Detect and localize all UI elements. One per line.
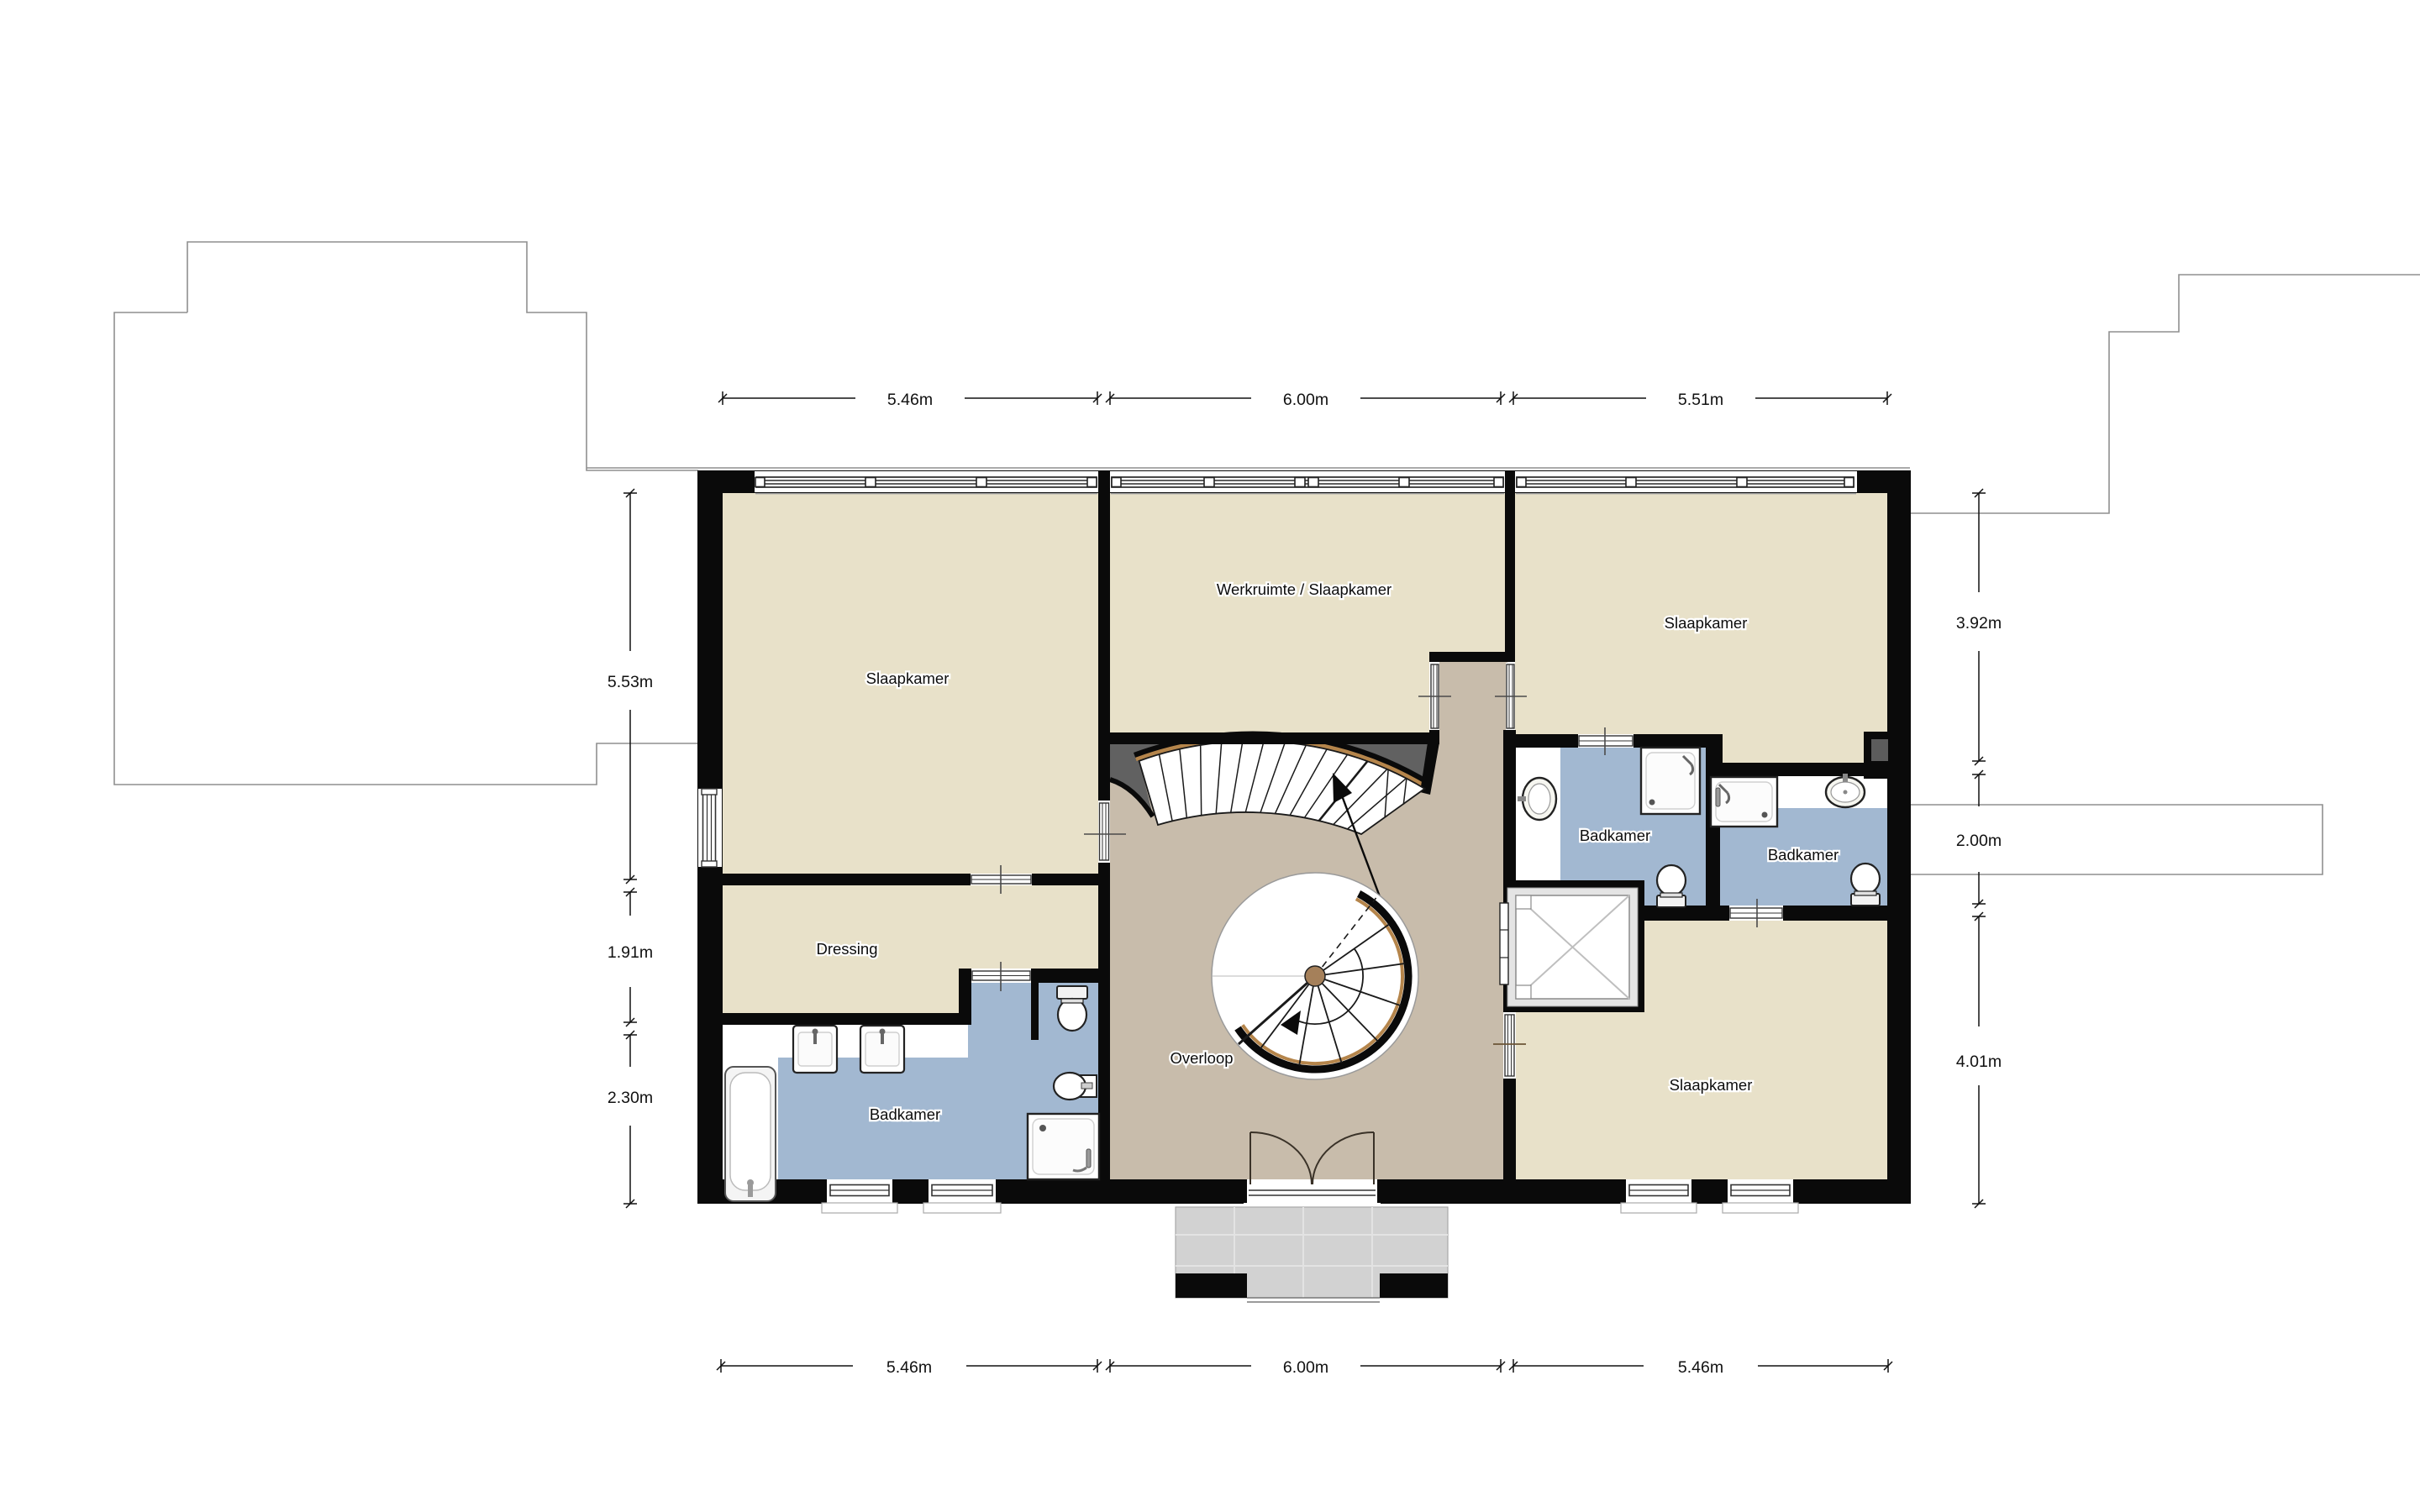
svg-text:Badkamer: Badkamer [870,1105,940,1123]
svg-text:2.30m: 2.30m [608,1089,653,1107]
svg-text:Werkruimte / Slaapkamer: Werkruimte / Slaapkamer [1217,580,1391,598]
svg-text:5.46m: 5.46m [887,391,933,409]
svg-text:Badkamer: Badkamer [1580,827,1650,844]
svg-text:Badkamer: Badkamer [1768,846,1839,864]
svg-text:3.92m: 3.92m [1956,614,2002,633]
svg-text:5.53m: 5.53m [608,673,653,691]
svg-text:4.01m: 4.01m [1956,1053,2002,1071]
svg-text:5.46m: 5.46m [1678,1358,1723,1377]
svg-text:Dressing: Dressing [817,940,878,958]
svg-text:Slaapkamer: Slaapkamer [1665,614,1748,632]
svg-text:6.00m: 6.00m [1283,391,1328,409]
svg-text:Overloop: Overloop [1170,1049,1233,1067]
svg-text:2.00m: 2.00m [1956,832,2002,850]
svg-text:1.91m: 1.91m [608,943,653,962]
svg-text:5.46m: 5.46m [886,1358,932,1377]
svg-text:5.51m: 5.51m [1678,391,1723,409]
svg-text:Slaapkamer: Slaapkamer [866,669,950,687]
svg-text:6.00m: 6.00m [1283,1358,1328,1377]
svg-text:Slaapkamer: Slaapkamer [1670,1076,1753,1094]
